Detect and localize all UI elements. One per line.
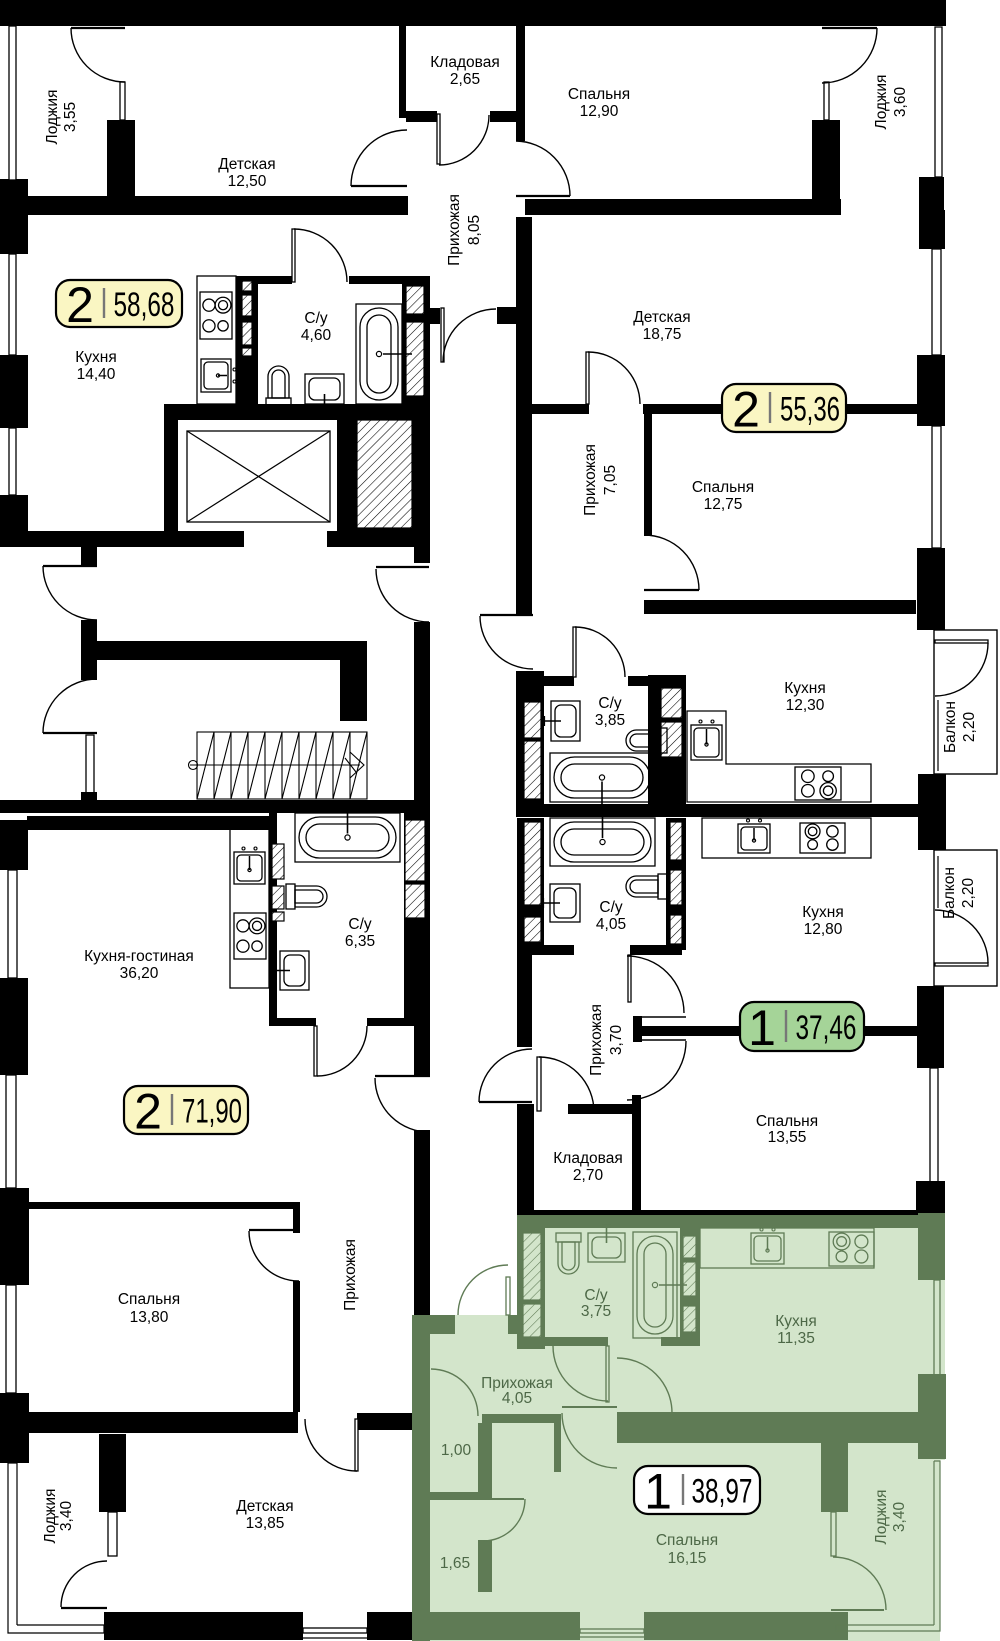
svg-text:4,05: 4,05 xyxy=(502,1390,532,1407)
svg-text:4,60: 4,60 xyxy=(301,327,332,344)
svg-text:14,40: 14,40 xyxy=(77,366,116,383)
svg-text:2,70: 2,70 xyxy=(573,1167,604,1184)
svg-text:3,75: 3,75 xyxy=(581,1303,611,1320)
svg-text:71,90: 71,90 xyxy=(182,1093,242,1131)
svg-text:11,35: 11,35 xyxy=(777,1330,815,1347)
svg-text:2,20: 2,20 xyxy=(960,878,977,909)
svg-text:Кладовая: Кладовая xyxy=(553,1150,622,1167)
svg-text:2,20: 2,20 xyxy=(961,712,978,743)
svg-text:2: 2 xyxy=(134,1084,162,1140)
svg-text:2: 2 xyxy=(66,277,94,333)
svg-text:Кухня: Кухня xyxy=(784,680,825,697)
svg-text:6,35: 6,35 xyxy=(345,933,375,950)
svg-text:Кухня: Кухня xyxy=(802,904,843,921)
svg-text:38,97: 38,97 xyxy=(692,1473,753,1511)
svg-text:2,65: 2,65 xyxy=(450,71,480,88)
svg-text:Спальня: Спальня xyxy=(756,1113,818,1130)
svg-text:Кухня-гостиная: Кухня-гостиная xyxy=(84,948,194,965)
svg-text:4,05: 4,05 xyxy=(596,916,626,933)
svg-text:8,05: 8,05 xyxy=(466,215,483,245)
svg-text:С/у: С/у xyxy=(599,899,623,916)
svg-text:С/у: С/у xyxy=(598,695,622,712)
svg-text:12,75: 12,75 xyxy=(704,496,743,513)
svg-text:Детская: Детская xyxy=(218,156,275,173)
svg-text:58,68: 58,68 xyxy=(114,286,175,324)
svg-text:Детская: Детская xyxy=(236,1498,293,1515)
svg-text:1: 1 xyxy=(644,1464,672,1520)
svg-text:Лоджия: Лоджия xyxy=(873,75,890,130)
svg-text:Прихожая: Прихожая xyxy=(588,1004,605,1076)
svg-text:Лоджия: Лоджия xyxy=(44,90,61,145)
svg-text:1,65: 1,65 xyxy=(440,1555,470,1572)
svg-text:Спальня: Спальня xyxy=(656,1532,718,1549)
svg-text:3,40: 3,40 xyxy=(891,1502,908,1533)
svg-text:16,15: 16,15 xyxy=(668,1550,707,1567)
svg-text:3,40: 3,40 xyxy=(58,1501,75,1532)
svg-text:Балкон: Балкон xyxy=(941,867,958,919)
svg-text:1: 1 xyxy=(748,1000,776,1056)
svg-text:18,75: 18,75 xyxy=(643,326,682,343)
svg-text:12,90: 12,90 xyxy=(580,103,619,120)
svg-text:3,70: 3,70 xyxy=(608,1025,625,1056)
svg-text:С/у: С/у xyxy=(348,916,372,933)
svg-text:Прихожая: Прихожая xyxy=(342,1239,359,1311)
svg-text:С/у: С/у xyxy=(304,310,328,327)
svg-text:7,05: 7,05 xyxy=(602,465,619,495)
svg-text:3,55: 3,55 xyxy=(62,102,79,132)
svg-text:Спальня: Спальня xyxy=(118,1291,180,1308)
svg-text:Кухня: Кухня xyxy=(775,1313,816,1330)
svg-text:2: 2 xyxy=(732,382,760,438)
svg-text:1,00: 1,00 xyxy=(441,1442,472,1459)
svg-text:Спальня: Спальня xyxy=(692,479,754,496)
svg-text:Прихожая: Прихожая xyxy=(582,444,599,516)
svg-text:37,46: 37,46 xyxy=(796,1009,857,1047)
svg-text:Спальня: Спальня xyxy=(568,86,630,103)
svg-text:55,36: 55,36 xyxy=(780,391,840,429)
svg-text:Лоджия: Лоджия xyxy=(873,1490,890,1545)
svg-text:12,30: 12,30 xyxy=(786,697,825,714)
svg-text:Кухня: Кухня xyxy=(75,349,116,366)
svg-text:3,85: 3,85 xyxy=(595,712,625,729)
svg-text:13,85: 13,85 xyxy=(246,1515,285,1532)
svg-text:Кладовая: Кладовая xyxy=(430,54,499,71)
svg-text:Балкон: Балкон xyxy=(942,701,959,753)
svg-text:12,50: 12,50 xyxy=(228,173,267,190)
svg-text:Детская: Детская xyxy=(633,309,690,326)
svg-text:13,80: 13,80 xyxy=(130,1309,169,1326)
svg-text:13,55: 13,55 xyxy=(768,1129,807,1146)
svg-text:Прихожая: Прихожая xyxy=(446,194,463,266)
svg-text:3,60: 3,60 xyxy=(892,87,909,118)
svg-text:Лоджия: Лоджия xyxy=(42,1489,59,1544)
svg-text:36,20: 36,20 xyxy=(120,965,159,982)
svg-text:12,80: 12,80 xyxy=(804,921,843,938)
svg-text:С/у: С/у xyxy=(584,1287,608,1304)
